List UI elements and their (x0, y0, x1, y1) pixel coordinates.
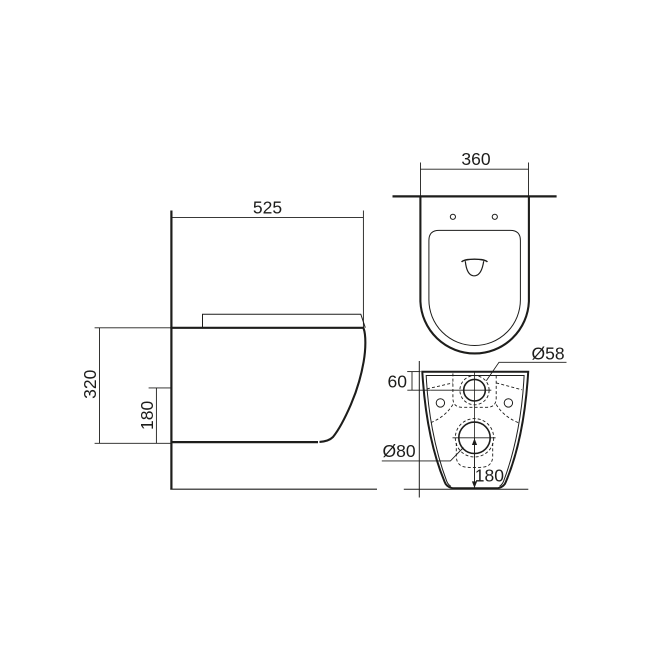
svg-text:525: 525 (253, 197, 282, 217)
svg-text:320: 320 (80, 369, 100, 398)
svg-text:Ø58: Ø58 (532, 343, 565, 363)
svg-text:Ø80: Ø80 (383, 441, 416, 461)
svg-text:360: 360 (461, 149, 490, 169)
svg-text:180: 180 (137, 401, 157, 430)
svg-text:60: 60 (388, 372, 408, 392)
svg-text:180: 180 (475, 466, 504, 486)
